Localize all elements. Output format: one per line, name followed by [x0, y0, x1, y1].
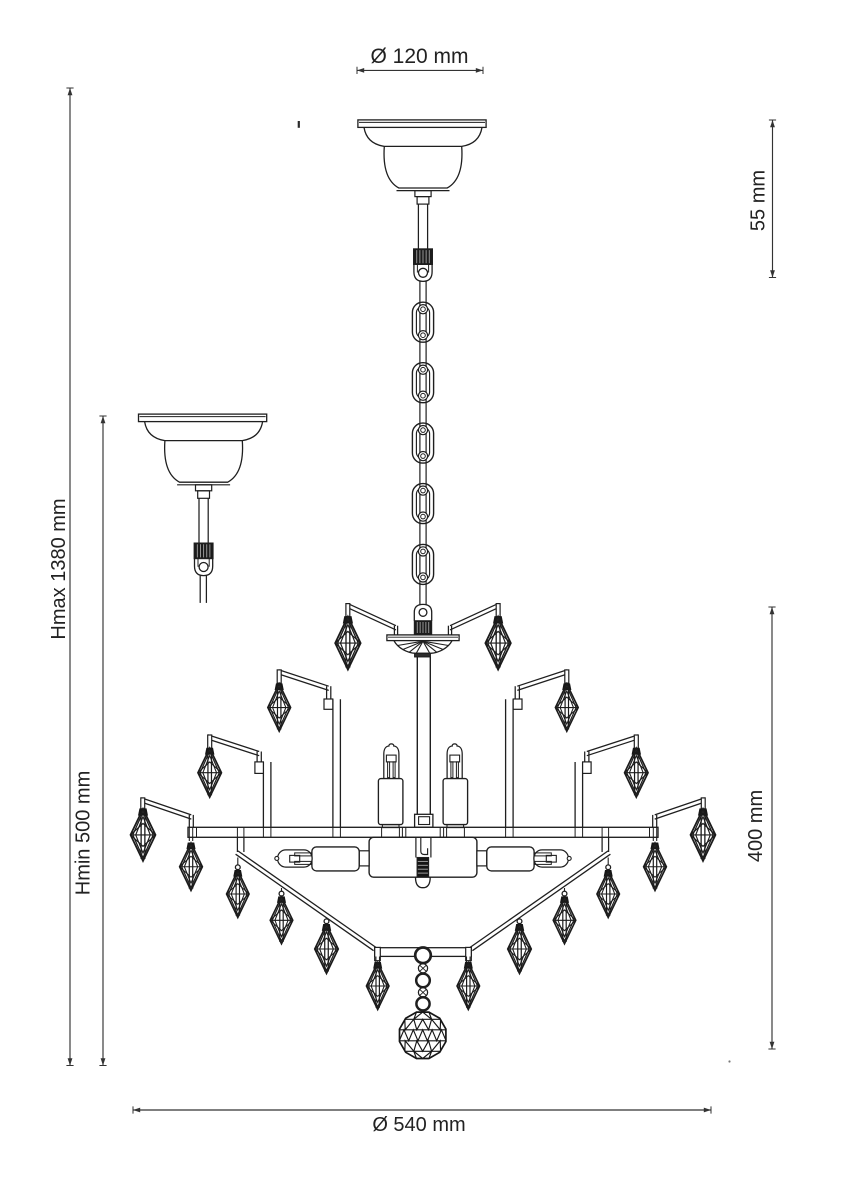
svg-text:Hmin 500 mm: Hmin 500 mm	[73, 771, 95, 895]
svg-text:Ø 120 mm: Ø 120 mm	[370, 45, 468, 68]
svg-text:Ø 540 mm: Ø 540 mm	[372, 1114, 465, 1136]
svg-text:400 mm: 400 mm	[745, 790, 767, 862]
svg-text:55 mm: 55 mm	[748, 170, 770, 231]
svg-text:Hmax 1380 mm: Hmax 1380 mm	[48, 498, 70, 639]
